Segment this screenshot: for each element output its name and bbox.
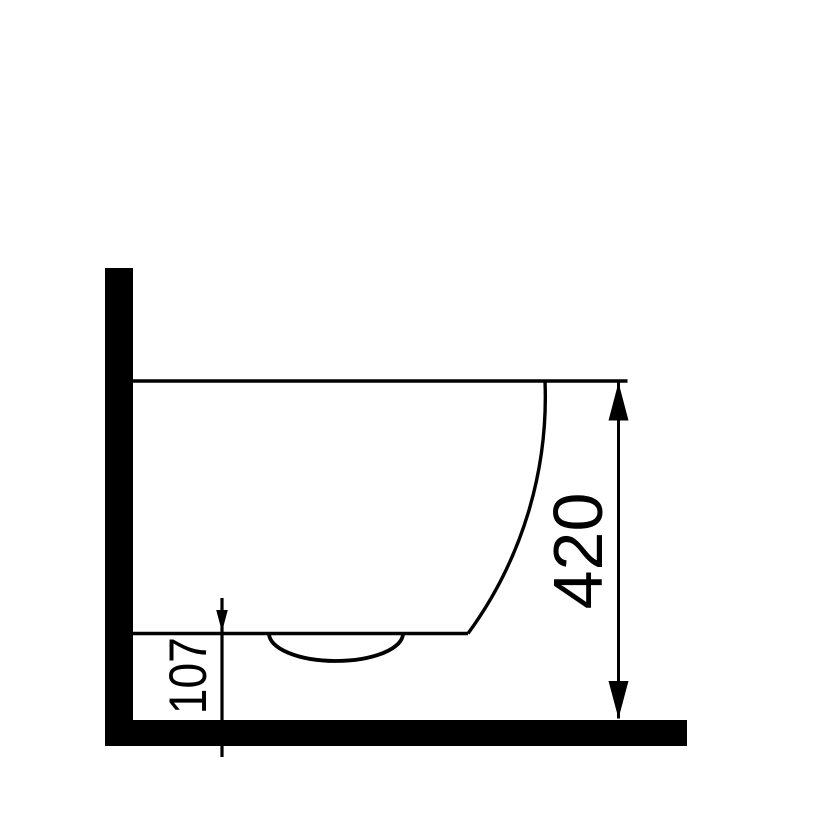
svg-text:107: 107 [159, 637, 218, 714]
svg-text:420: 420 [539, 493, 617, 610]
